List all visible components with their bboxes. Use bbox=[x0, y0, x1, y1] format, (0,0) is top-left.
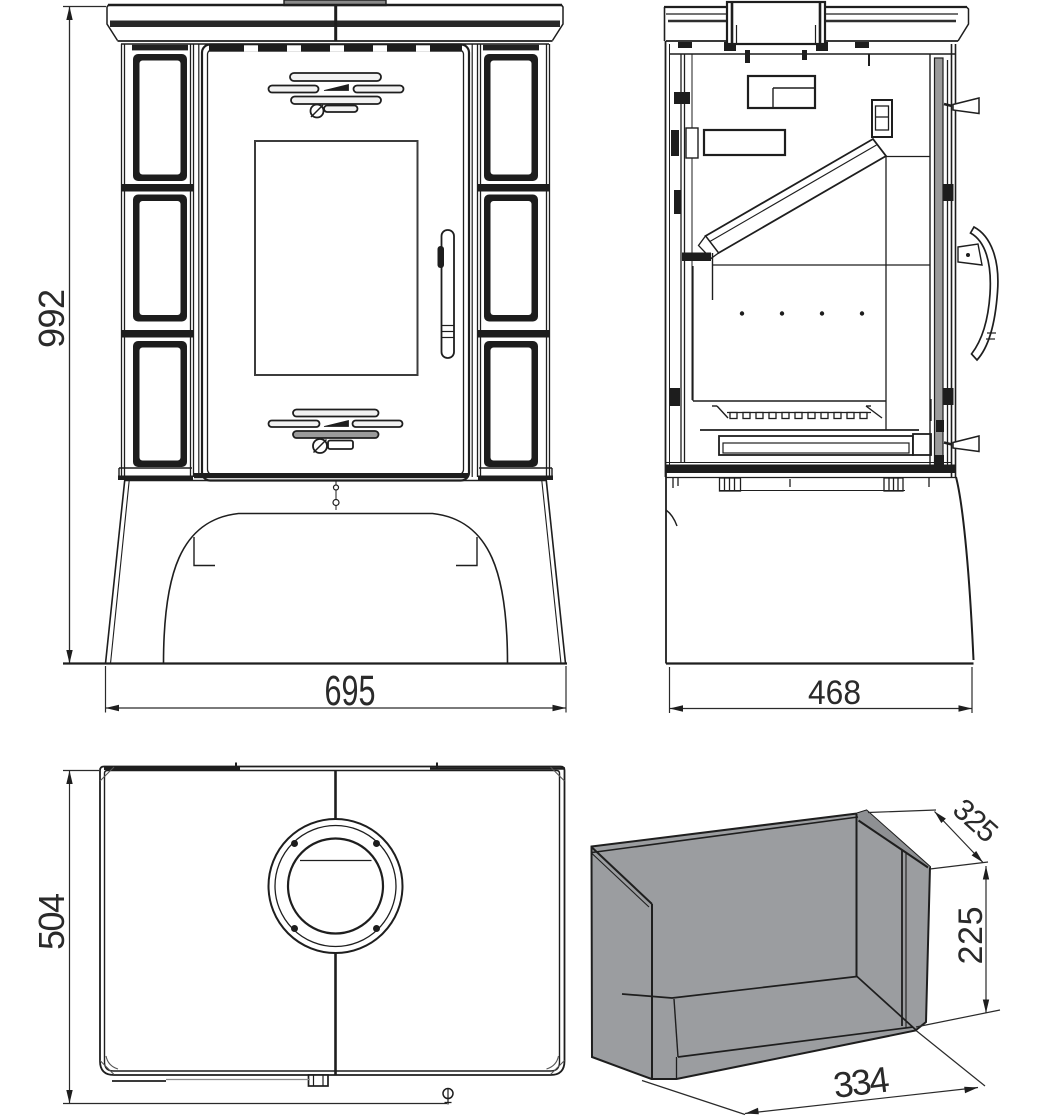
svg-text:225: 225 bbox=[952, 907, 990, 965]
svg-text:695: 695 bbox=[325, 667, 376, 715]
svg-text:334: 334 bbox=[831, 1058, 892, 1106]
svg-text:992: 992 bbox=[31, 289, 72, 348]
svg-text:504: 504 bbox=[31, 893, 72, 950]
svg-text:468: 468 bbox=[808, 674, 861, 712]
